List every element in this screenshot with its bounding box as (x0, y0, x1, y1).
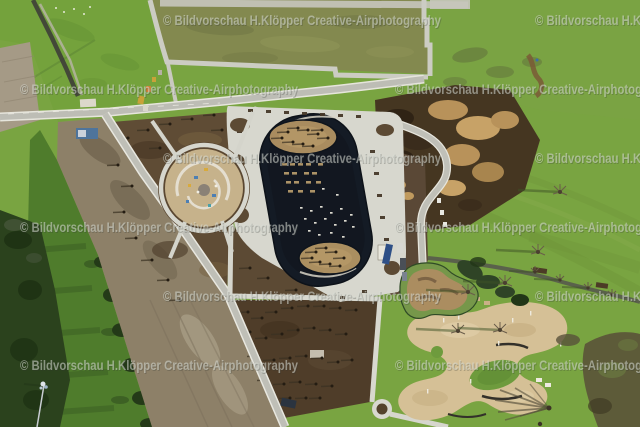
play-equipment (208, 204, 211, 207)
marina-boats-item (340, 208, 343, 210)
vehicle (158, 70, 162, 75)
marina-pontoons-item (286, 181, 291, 184)
birds-item (73, 8, 75, 10)
marina-boats-item (342, 236, 345, 238)
marina-boats-item (310, 210, 313, 212)
marina-boats-item (334, 224, 337, 226)
dirt-heap (491, 111, 519, 129)
apron-planters-item (302, 112, 307, 115)
apron-planters-item (377, 194, 382, 197)
marina-boats-item (344, 220, 347, 222)
top-corner-pavement (430, 0, 470, 9)
sand-posts-item (427, 389, 428, 394)
marina-pontoons-item (316, 181, 321, 184)
marina-boats-item (324, 218, 327, 220)
corner-planting-circle (377, 404, 388, 415)
watermark-text: © Bildvorschau H.Klöpper Creative-Airpho… (20, 220, 298, 235)
aerial-photo: Aerial photograph of a park under constr… (0, 0, 640, 427)
watermark-text: © Bildvorschau H.Klöpper Creative-Airpho… (395, 358, 640, 373)
marina-boats-item (350, 214, 353, 216)
marina-boats-item (320, 206, 323, 208)
watermark-text: © Bildvorschau H.Klöpper Creative-Airpho… (163, 13, 441, 28)
center-structure (198, 184, 210, 196)
apron-planters-item (384, 238, 389, 241)
truck (397, 243, 403, 253)
marina-pontoons-item (288, 190, 293, 193)
marina-boats-item (330, 232, 333, 234)
picnic-table (536, 378, 542, 382)
sand-posts-item (470, 379, 471, 384)
south-island (299, 242, 361, 274)
watermark-text: © Bildvorschau H.Klöpper Creative-Airpho… (20, 82, 298, 97)
watermark-text: © Bildvorschau H.Klöpper Creative-Airpho… (535, 13, 640, 28)
apron-planters-item (374, 172, 379, 175)
apron-planters-item (248, 109, 253, 112)
marina-boats-item (304, 218, 307, 220)
aerial-photo-stage: Aerial photograph of a park under constr… (0, 0, 640, 427)
play-equipment (194, 176, 198, 179)
dirt-heap (472, 162, 504, 182)
marina-boats-item (336, 194, 339, 196)
cabin (437, 198, 441, 203)
marina-pontoons-item (298, 190, 303, 193)
north-island (269, 120, 337, 154)
grass-islet (431, 346, 443, 358)
watermark-text: © Bildvorschau H.Klöpper Creative-Airpho… (535, 289, 640, 304)
birds-item (89, 6, 91, 8)
marina-pontoons-item (284, 172, 289, 175)
watermark-text: © Bildvorschau H.Klöpper Creative-Airpho… (163, 151, 441, 166)
sand-posts-item (512, 318, 513, 323)
birds-item (63, 11, 65, 13)
cabin (440, 210, 444, 215)
marina-boats-item (300, 207, 303, 209)
apron-planters-item (338, 114, 343, 117)
marina-boats-item (352, 226, 355, 228)
play-equipment (188, 184, 191, 187)
worker-dot (536, 59, 539, 62)
van (143, 105, 148, 111)
picnic-table (484, 301, 490, 305)
marina-pontoons-item (294, 181, 299, 184)
dirt-heap (428, 100, 468, 120)
watermark-text: © Bildvorschau H.Klöpper Creative-Airpho… (163, 289, 441, 304)
play-equipment (204, 168, 208, 171)
apron-planters-item (266, 110, 271, 113)
sand-posts-item (498, 341, 499, 346)
marina-boats-item (308, 230, 311, 232)
marina-boats-item (314, 222, 317, 224)
sand-posts-item (530, 311, 531, 316)
marina-boats-item (330, 212, 333, 214)
watermark-text: © Bildvorschau H.Klöpper Creative-Airpho… (395, 82, 640, 97)
white-shed (80, 99, 96, 108)
marina-boats-item (322, 188, 325, 190)
play-equipment (212, 194, 216, 197)
marina-pontoons-item (304, 172, 309, 175)
birds-item (83, 13, 85, 15)
marina-pontoons-item (292, 172, 297, 175)
sand-posts-item (458, 315, 459, 320)
corner-bed (376, 124, 394, 136)
play-equipment (186, 200, 189, 203)
marina-boats-item (318, 234, 321, 236)
apron-planters-item (356, 115, 361, 118)
watermark-text: © Bildvorschau H.Klöpper Creative-Airpho… (20, 358, 298, 373)
truck (402, 272, 407, 281)
birds-item (55, 7, 57, 9)
watermark-text: © Bildvorschau H.Klöpper Creative-Airpho… (535, 151, 640, 166)
watermark-text: © Bildvorschau H.Klöpper Creative-Airpho… (395, 220, 640, 235)
truck (400, 258, 406, 270)
marina-pontoons-item (306, 181, 311, 184)
apron-planters-item (320, 113, 325, 116)
apron-planters-item (284, 111, 289, 114)
marina-pontoons-item (312, 172, 317, 175)
sand-posts-item (443, 318, 444, 323)
picnic-table (545, 383, 551, 387)
bare-canopy (26, 253, 42, 263)
apron-planters-item (380, 216, 385, 219)
marina-pontoons-item (310, 190, 315, 193)
